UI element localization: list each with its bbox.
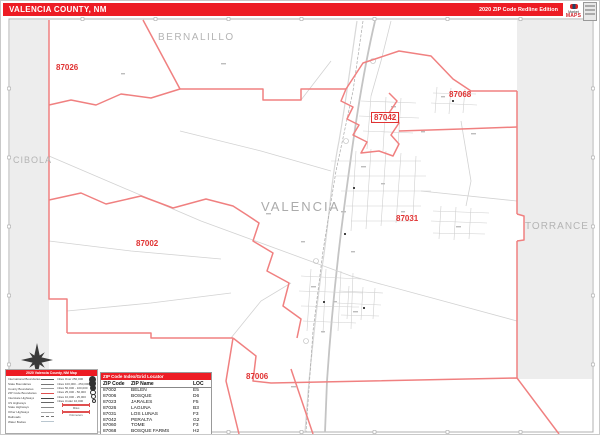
street-grid-rio-communities <box>337 286 383 320</box>
zip-table-title: ZIP Code Index/Grid Locator <box>101 373 211 380</box>
bernalillo-boundary-line <box>143 20 180 89</box>
logo-side-panel <box>583 2 597 21</box>
zip-code-table: ZIP Code Index/Grid Locator ZIP CodeZIP … <box>100 372 212 435</box>
scale-bar-icon <box>62 404 90 406</box>
city-size-icon <box>92 399 96 403</box>
logo-brand-bottom: MAPS <box>565 14 582 18</box>
legend-left-col: International BoundariesState Boundaries… <box>8 377 54 424</box>
zip-label-87042: 87042 <box>371 112 399 123</box>
scale-label-miles: Miles <box>73 406 80 410</box>
scale-bar-icon <box>62 411 90 413</box>
zip-table-col-header: ZIP Code <box>103 381 131 387</box>
road-network <box>49 21 517 338</box>
edition-label: 2020 ZIP Code Redline Edition <box>479 7 558 13</box>
logo-mark: Market MAPS <box>565 2 582 24</box>
logo-emblem-icon <box>570 4 578 9</box>
scale-bar-kilometers: Kilometers <box>57 411 96 417</box>
page-title: VALENCIA COUNTY, NM <box>3 5 107 14</box>
zip-label-87002: 87002 <box>136 239 158 248</box>
torrance-area <box>517 20 592 379</box>
title-bar: VALENCIA COUNTY, NM 2020 ZIP Code Redlin… <box>3 3 563 16</box>
marketmaps-logo: Market MAPS <box>565 2 599 23</box>
scale-label-kilometers: Kilometers <box>70 413 83 417</box>
county-label-cibola: CIBOLA <box>13 155 52 165</box>
zip-table-col-header: LOC <box>193 381 209 387</box>
legend-city-list: Cities Over 250,000Cities 100,000 - 250,… <box>57 377 96 403</box>
county-label-valencia: VALENCIA <box>261 199 340 214</box>
zip-label-87068: 87068 <box>449 90 471 99</box>
town-markers <box>323 100 454 309</box>
street-grid-peralta <box>359 96 419 151</box>
map-page: VALENCIA COUNTY, NM 2020 ZIP Code Redlin… <box>0 0 600 435</box>
county-label-bernalillo: BERNALILLO <box>158 32 235 43</box>
legend-box: 2020 Valencia County, NM Map Internation… <box>5 369 98 434</box>
rio-grande-river <box>305 21 357 432</box>
zip-label-87006: 87006 <box>246 372 268 381</box>
street-grid-meadow-lake <box>431 206 489 240</box>
table-row: 87068BOSQUE FARMSH2 <box>103 429 209 435</box>
boundary-notch <box>506 215 524 240</box>
zip-label-87026: 87026 <box>56 63 78 72</box>
legend-right-col: Cities Over 250,000Cities 100,000 - 250,… <box>57 377 96 424</box>
legend-item: Water Bodies <box>8 419 54 424</box>
county-label-torrance: TORRANCE <box>525 221 589 232</box>
zip-table-body: 87002BELENE587006BOSQUED687023JARALESF58… <box>101 388 211 435</box>
zip-label-87031: 87031 <box>396 214 418 223</box>
zip-table-col-header: ZIP Name <box>131 381 193 387</box>
zip-table-colrow: ZIP CodeZIP NameLOC <box>101 380 211 388</box>
